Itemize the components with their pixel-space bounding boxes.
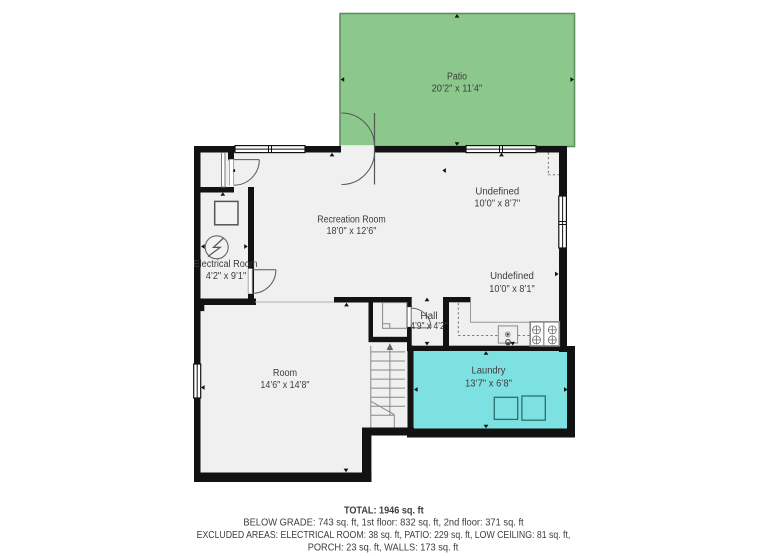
svg-text:Patio: Patio [447, 72, 467, 83]
svg-text:TOTAL: 1946 sq. ft: TOTAL: 1946 sq. ft [344, 505, 424, 516]
svg-text:4’9" x 4’2": 4’9" x 4’2" [410, 321, 448, 332]
svg-text:18’0" x 12’6": 18’0" x 12’6" [327, 226, 378, 237]
svg-text:Laundry: Laundry [472, 366, 506, 377]
svg-text:10’0" x 8’7": 10’0" x 8’7" [474, 198, 520, 209]
svg-text:Room: Room [273, 368, 297, 379]
svg-text:Undefined: Undefined [475, 187, 519, 198]
svg-text:13’7" x 6’8": 13’7" x 6’8" [465, 379, 512, 390]
svg-text:20’2" x 11’4": 20’2" x 11’4" [432, 84, 483, 95]
svg-text:Undefined: Undefined [490, 271, 534, 282]
svg-text:BELOW GRADE: 743 sq. ft, 1st f: BELOW GRADE: 743 sq. ft, 1st floor: 832 … [243, 518, 524, 529]
svg-text:4’2" x 9’1": 4’2" x 9’1" [206, 271, 247, 282]
svg-text:EXCLUDED AREAS: ELECTRICAL ROO: EXCLUDED AREAS: ELECTRICAL ROOM: 38 sq. … [197, 530, 571, 541]
svg-text:PORCH: 23 sq. ft, WALLS: 173 s: PORCH: 23 sq. ft, WALLS: 173 sq. ft [308, 543, 459, 554]
svg-text:14’6" x 14’8": 14’6" x 14’8" [260, 380, 310, 391]
svg-text:Recreation Room: Recreation Room [317, 214, 386, 225]
svg-text:10’0" x 8’1": 10’0" x 8’1" [489, 284, 535, 295]
svg-text:Electrical Room: Electrical Room [194, 259, 258, 270]
